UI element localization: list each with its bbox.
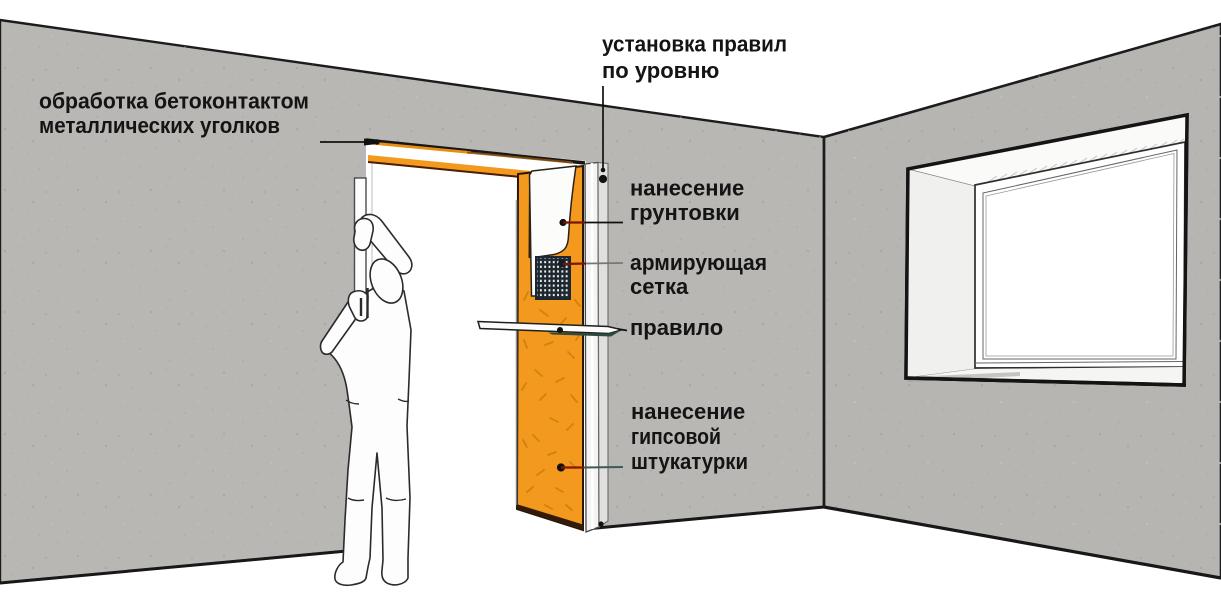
svg-text:правило: правило [630,315,723,340]
svg-text:металлических уголков: металлических уголков [39,113,280,138]
svg-text:обработка бетоконтактом: обработка бетоконтактом [39,89,309,114]
svg-text:армирующая: армирующая [630,250,767,275]
svg-text:по уровню: по уровню [602,58,719,83]
svg-text:сетка: сетка [630,274,689,299]
svg-text:штукатурки: штукатурки [631,449,748,474]
svg-text:грунтовки: грунтовки [630,200,740,225]
svg-text:нанесение: нанесение [631,399,745,424]
svg-text:нанесение: нанесение [630,176,744,201]
svg-text:гипсовой: гипсовой [631,424,721,449]
svg-text:установка правил: установка правил [602,32,787,57]
